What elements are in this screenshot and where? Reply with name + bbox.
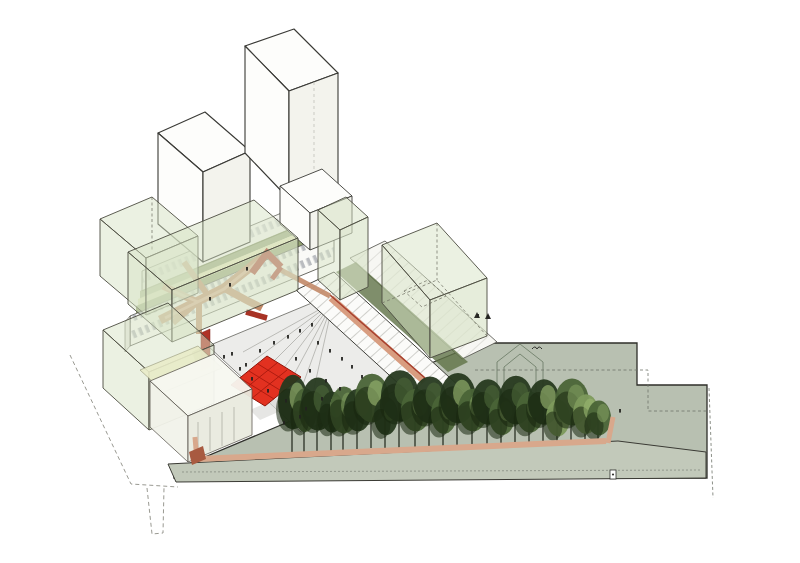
person-figure — [339, 387, 341, 391]
person-figure — [295, 357, 297, 361]
person-figure — [305, 407, 307, 411]
person-figure — [299, 329, 301, 333]
person-figure — [311, 323, 313, 327]
person-figure — [487, 315, 489, 319]
person-figure — [329, 349, 331, 353]
person-figure — [239, 367, 241, 371]
person-figure — [229, 283, 231, 287]
person-figure — [351, 365, 353, 369]
person-figure — [209, 297, 211, 301]
person-figure — [223, 355, 225, 359]
person-figure — [246, 267, 248, 271]
person-figure — [309, 369, 311, 373]
person-figure — [619, 409, 621, 413]
person-figure — [267, 389, 269, 393]
person-figure — [321, 397, 323, 401]
person-figure — [245, 363, 247, 367]
person-figure — [477, 314, 479, 318]
green-volume-center-right — [318, 197, 368, 300]
person-figure — [341, 357, 343, 361]
person-figure — [259, 349, 261, 353]
person-figure — [231, 352, 233, 356]
person-figure — [361, 375, 363, 379]
person-figure — [325, 379, 327, 383]
person-figure — [251, 377, 253, 381]
person-figure — [317, 341, 319, 345]
person-figure — [283, 421, 285, 425]
entrance-marker — [610, 470, 616, 479]
diagram-canvas — [0, 0, 800, 563]
person-figure — [273, 341, 275, 345]
person-figure — [285, 399, 287, 403]
person-figure — [299, 415, 301, 419]
person-figure — [287, 335, 289, 339]
road-stub — [147, 488, 164, 534]
architectural-axonometric-diagram — [0, 0, 800, 563]
